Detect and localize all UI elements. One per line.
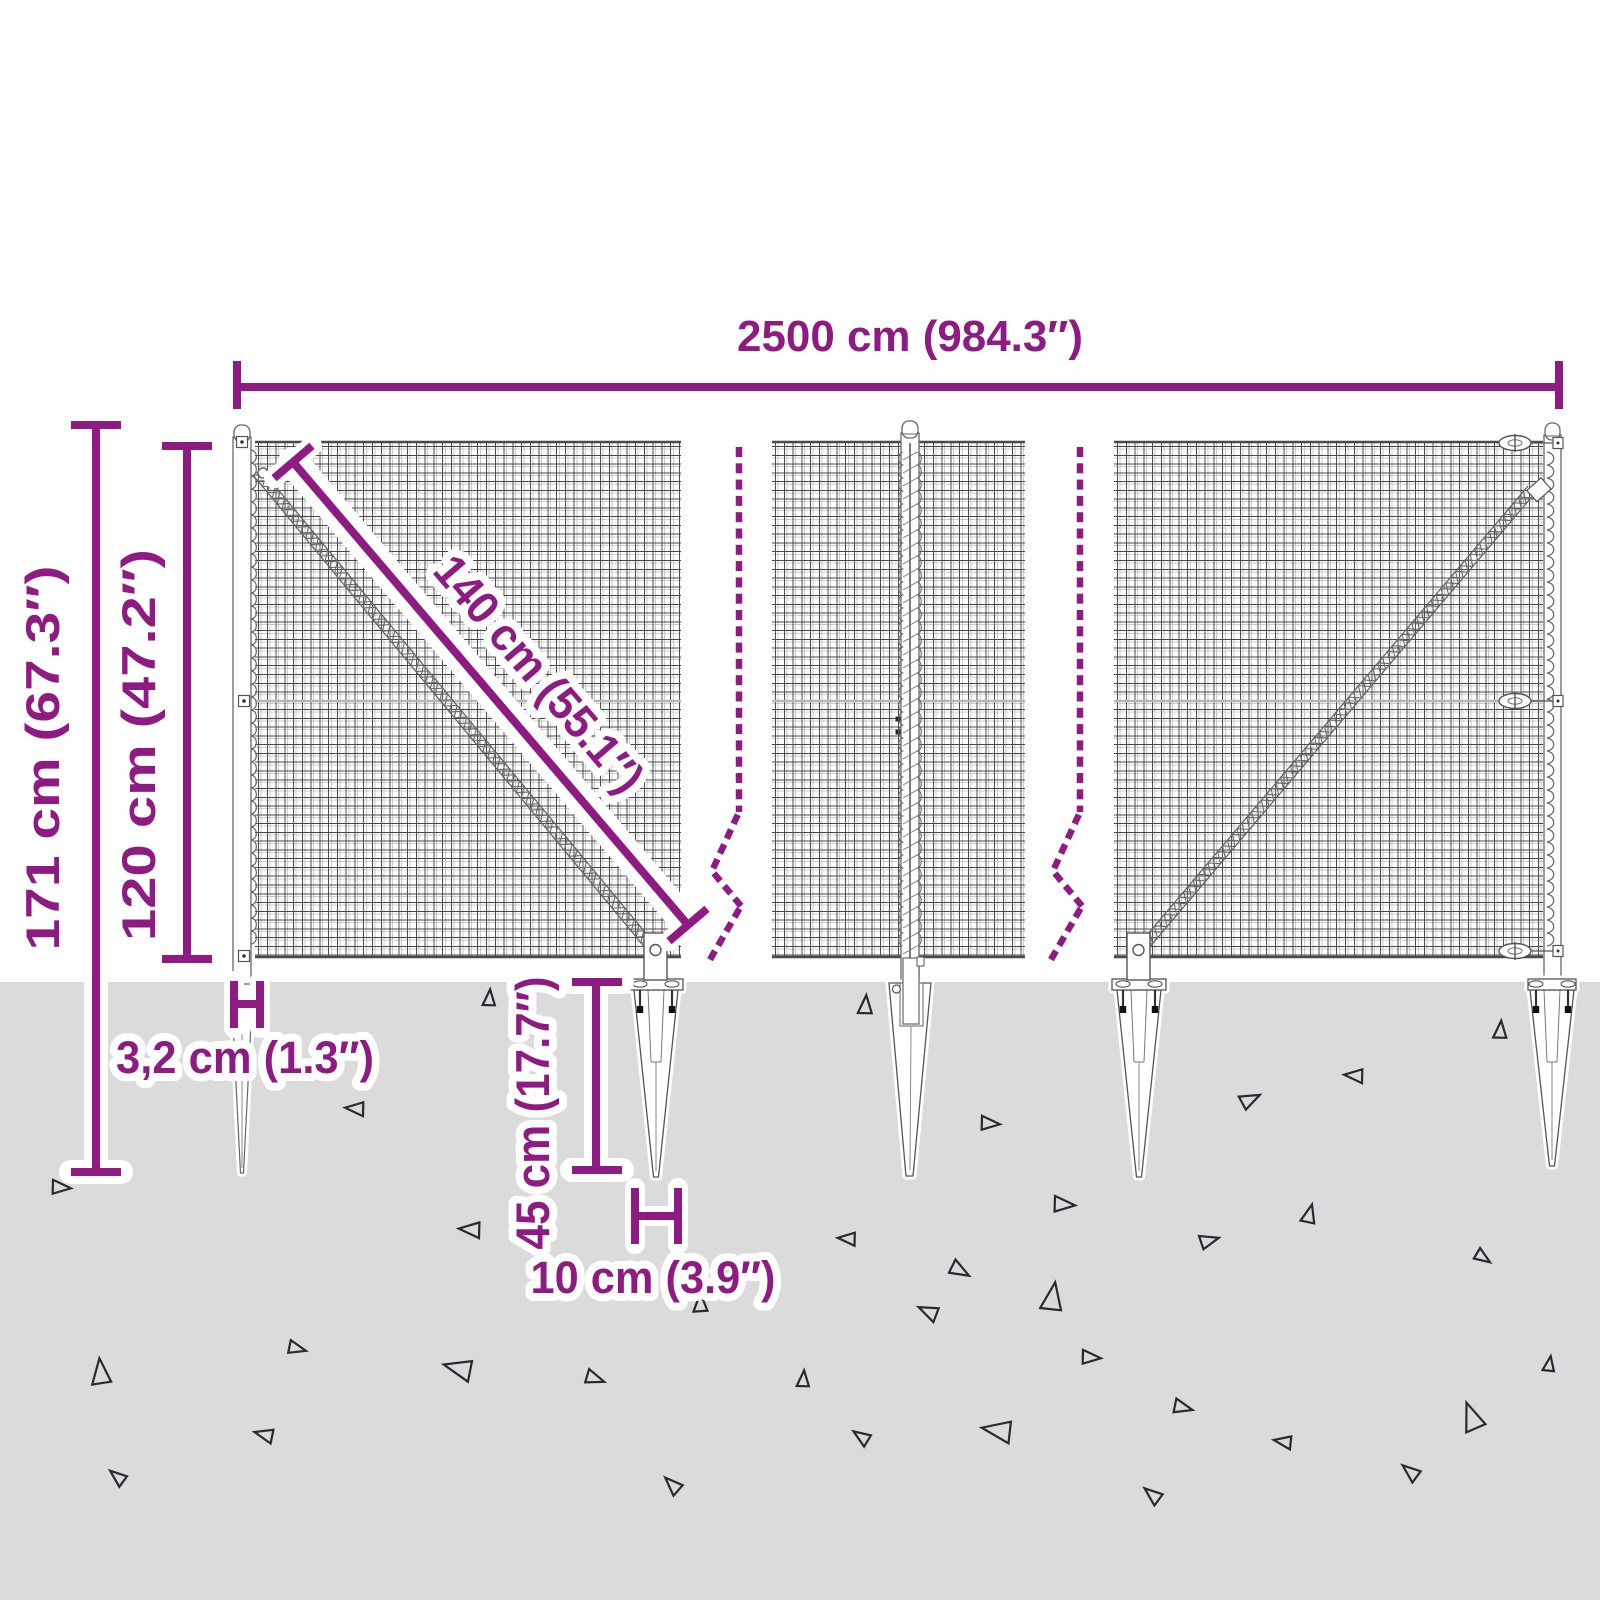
svg-text:171 cm (67.3″): 171 cm (67.3″) — [16, 566, 69, 951]
svg-text:120 cm (47.2″): 120 cm (47.2″) — [112, 549, 165, 941]
svg-text:45 cm (17.7″): 45 cm (17.7″) — [506, 977, 559, 1250]
svg-text:2500 cm (984.3″): 2500 cm (984.3″) — [737, 312, 1083, 361]
svg-text:10 cm (3.9″): 10 cm (3.9″) — [531, 1252, 776, 1303]
svg-text:3,2 cm (1.3″): 3,2 cm (1.3″) — [116, 1032, 374, 1083]
